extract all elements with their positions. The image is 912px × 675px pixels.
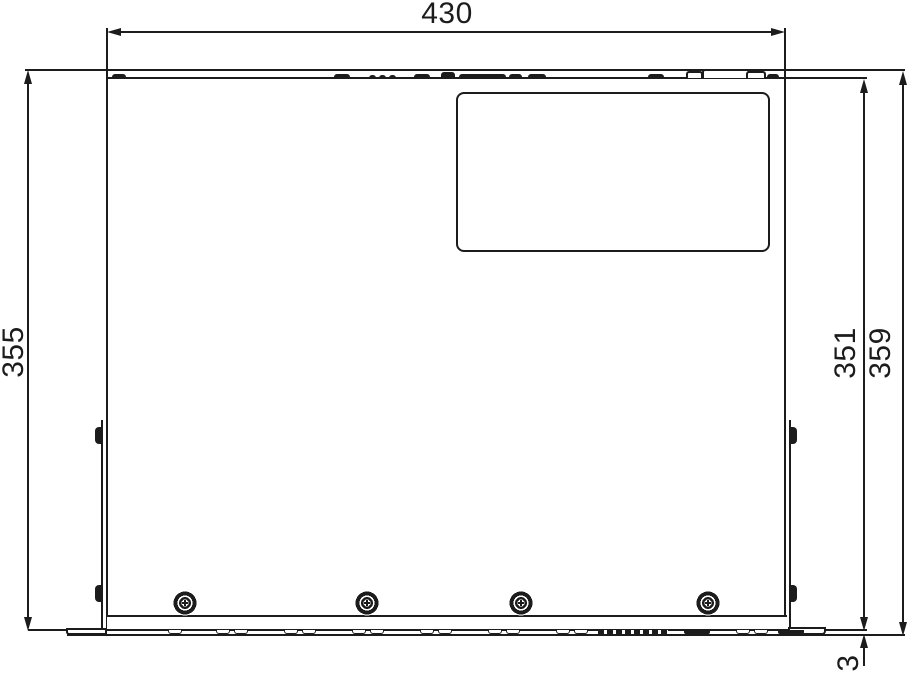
arrowhead-right-outer-bottom [899,622,907,636]
arrowhead-left-height-bottom [24,617,32,631]
technical-drawing-canvas: 430 355 351 359 3 [0,0,912,675]
arrowhead-base-gap [860,634,868,648]
dim-line-base-gap-tail [863,648,865,666]
dim-line-left-height [27,84,29,618]
dim-line-right-outer [902,85,904,622]
mounting-screw [354,590,380,616]
dimension-label-left-height: 355 [0,307,29,397]
mounting-screw [695,590,721,616]
arrowhead-left-height-top [24,70,32,84]
arrowhead-right-outer-top [899,71,907,85]
mounting-screw [508,590,534,616]
arrowhead-right-inner-top [860,79,868,93]
mounting-screw [172,590,198,616]
mounting-screws [0,0,912,675]
dimension-label-right-outer-height: 359 [866,308,896,398]
dimension-label-right-inner-height: 351 [831,308,861,398]
